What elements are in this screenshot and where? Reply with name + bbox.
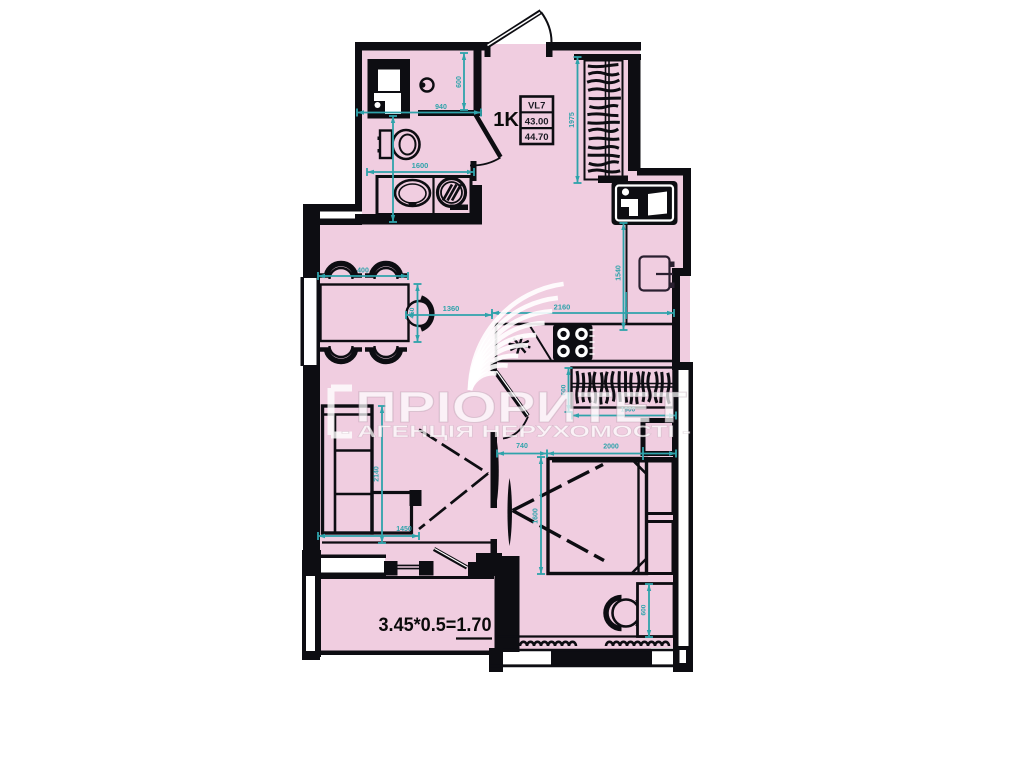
svg-text:400: 400 — [357, 268, 369, 275]
svg-text:- АГЕНЦІЯ НЕРУХОМОСТІ -: - АГЕНЦІЯ НЕРУХОМОСТІ - — [341, 422, 691, 441]
svg-text:VL7: VL7 — [528, 101, 545, 112]
svg-text:43.00: 43.00 — [525, 116, 549, 127]
svg-text:740: 740 — [516, 443, 528, 450]
svg-text:1975: 1975 — [569, 112, 576, 128]
svg-text:2160: 2160 — [554, 303, 571, 312]
svg-text:44.70: 44.70 — [525, 132, 549, 143]
svg-text:1600: 1600 — [412, 161, 429, 170]
svg-text:2140: 2140 — [374, 466, 381, 482]
svg-text:3.45*0.5=1.70: 3.45*0.5=1.70 — [379, 614, 492, 636]
svg-text:1450: 1450 — [396, 526, 412, 533]
svg-text:940: 940 — [435, 104, 447, 111]
svg-text:2000: 2000 — [603, 444, 619, 451]
svg-text:1K: 1K — [493, 109, 519, 131]
svg-text:600: 600 — [456, 76, 463, 88]
svg-text:600: 600 — [641, 604, 648, 615]
svg-text:1600: 1600 — [533, 508, 540, 524]
svg-text:1540: 1540 — [616, 265, 623, 281]
svg-text:1360: 1360 — [443, 304, 460, 313]
